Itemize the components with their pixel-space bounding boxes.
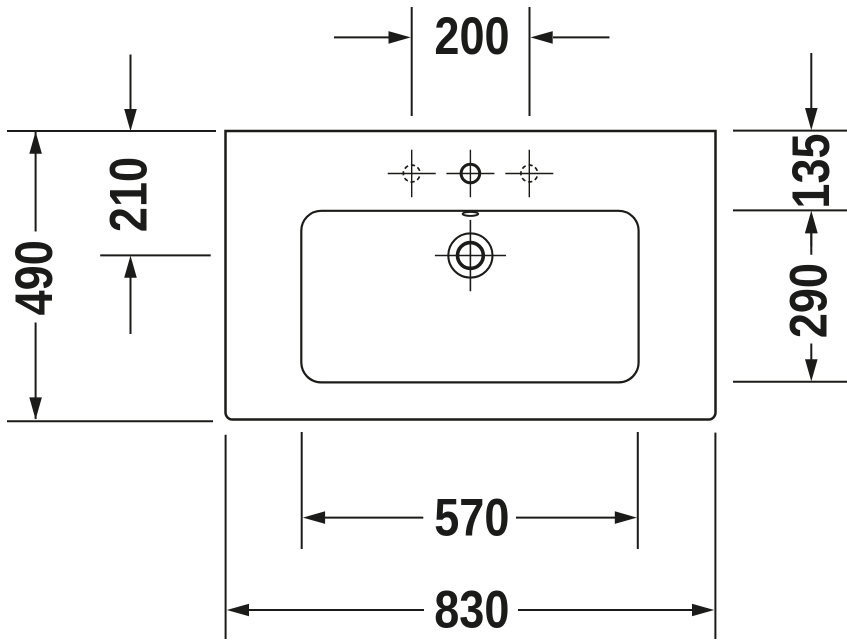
svg-text:570: 570 bbox=[434, 488, 509, 547]
svg-text:200: 200 bbox=[434, 6, 509, 65]
svg-text:290: 290 bbox=[779, 263, 838, 338]
svg-text:135: 135 bbox=[781, 133, 840, 208]
svg-text:490: 490 bbox=[5, 240, 64, 315]
svg-text:830: 830 bbox=[434, 580, 509, 639]
svg-text:210: 210 bbox=[99, 157, 158, 232]
